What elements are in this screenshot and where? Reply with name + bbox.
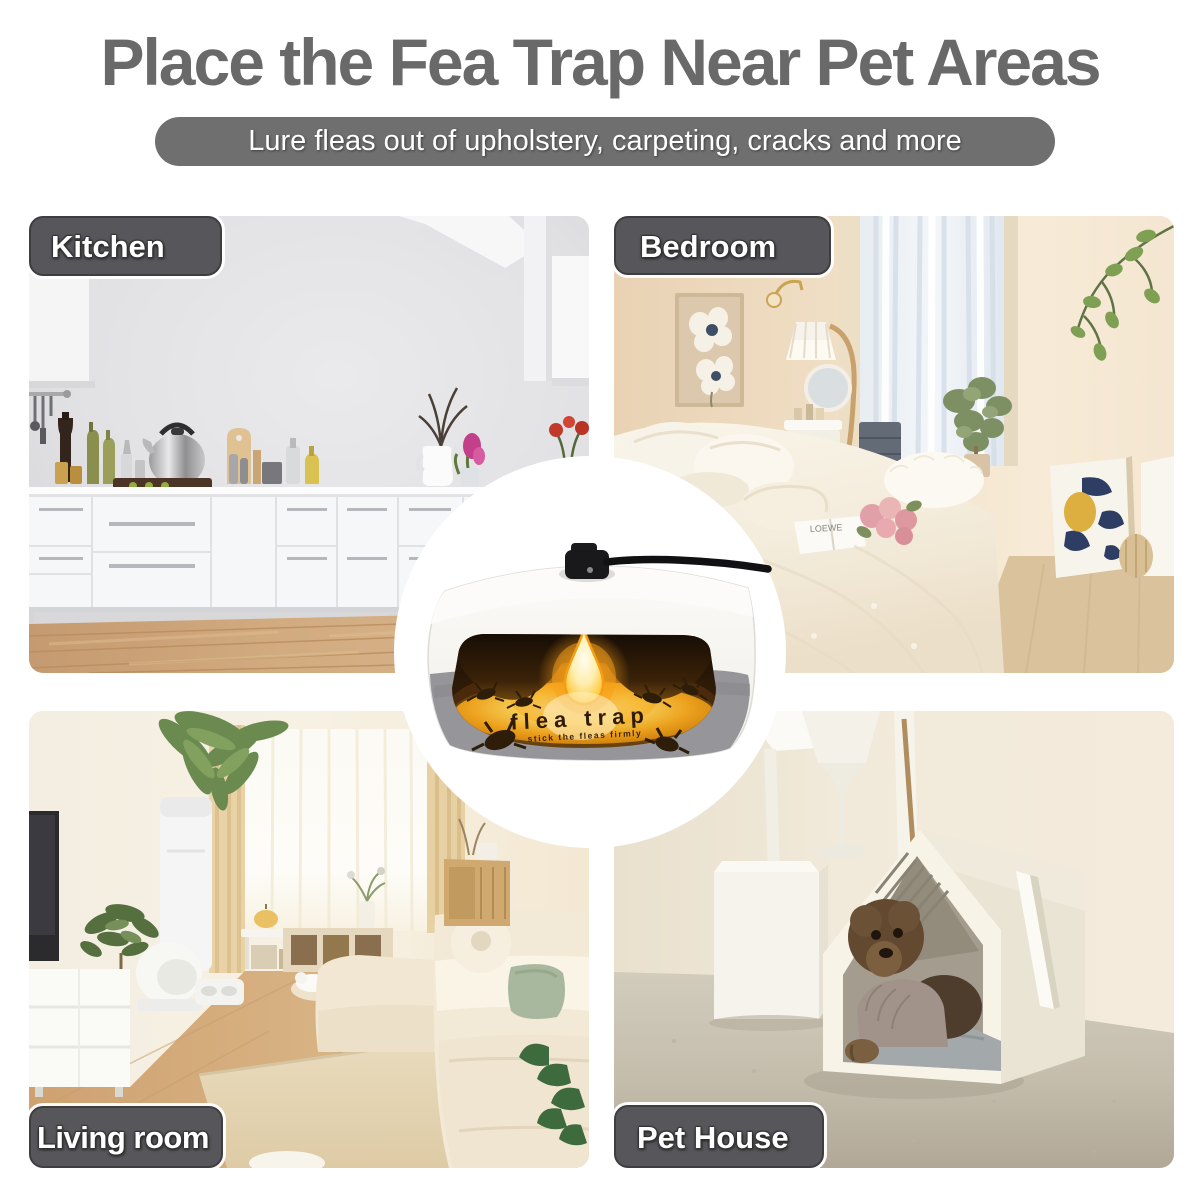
svg-text:LOEWE: LOEWE (810, 522, 843, 534)
